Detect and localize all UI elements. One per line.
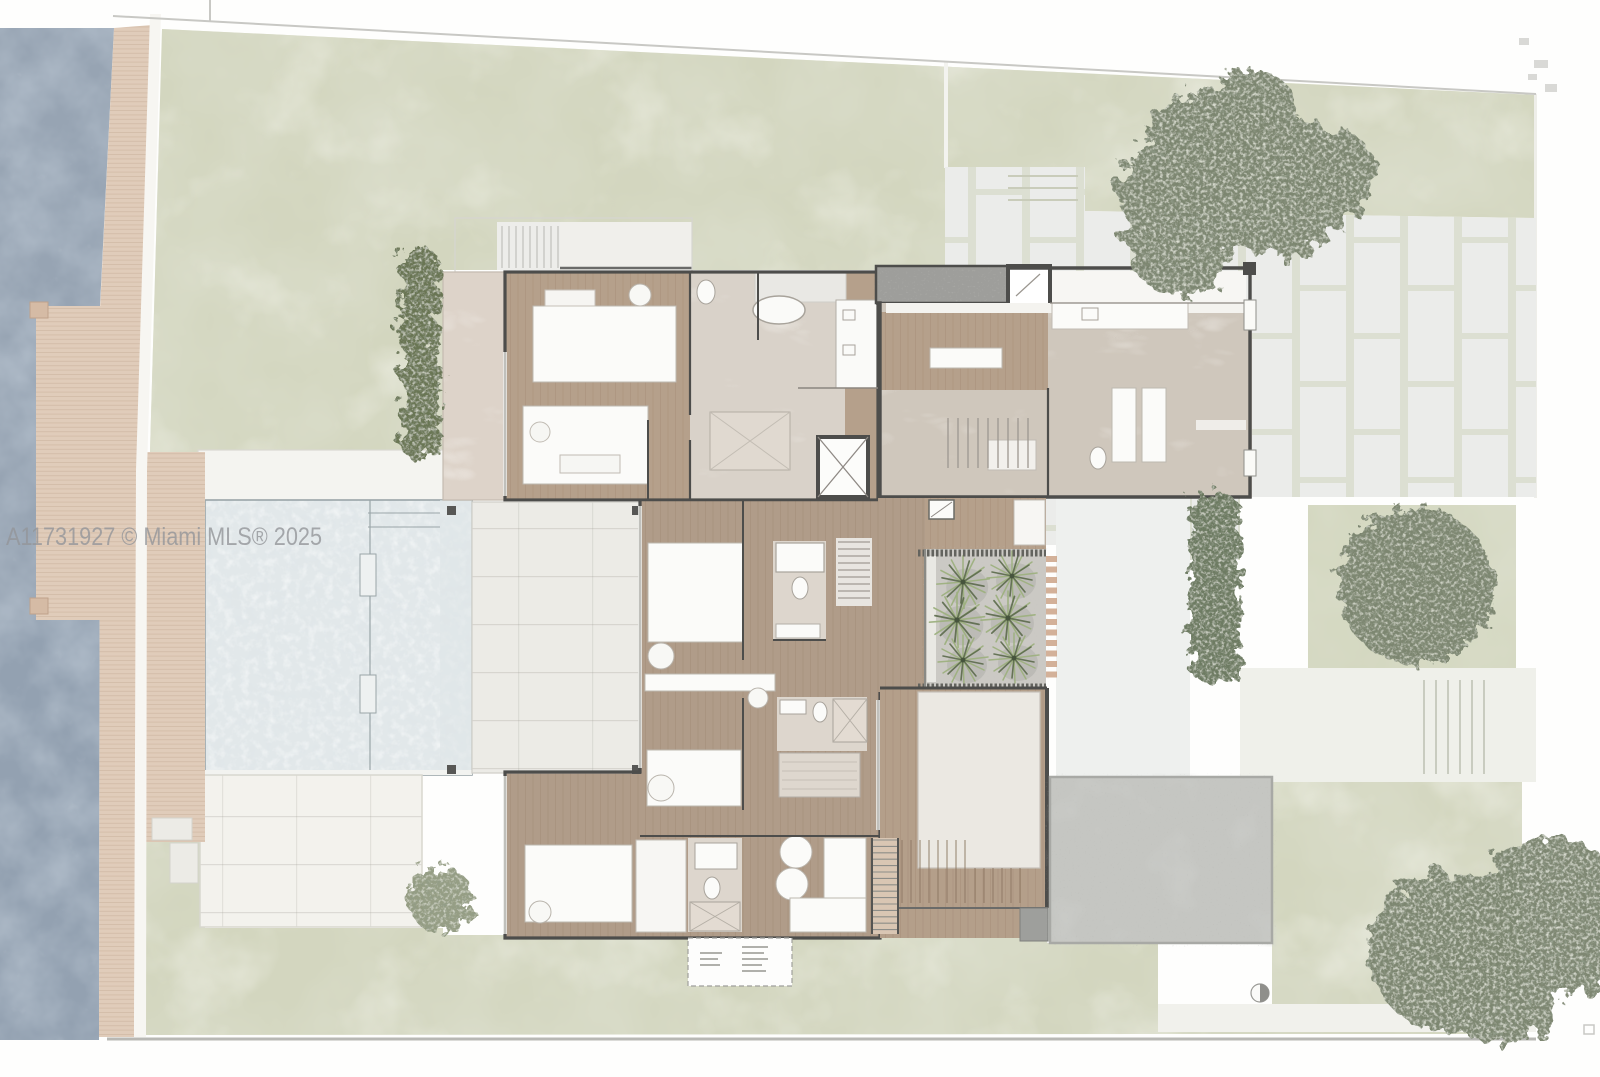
svg-text:A11731927 © Miami MLS® 2025: A11731927 © Miami MLS® 2025 — [6, 523, 322, 551]
